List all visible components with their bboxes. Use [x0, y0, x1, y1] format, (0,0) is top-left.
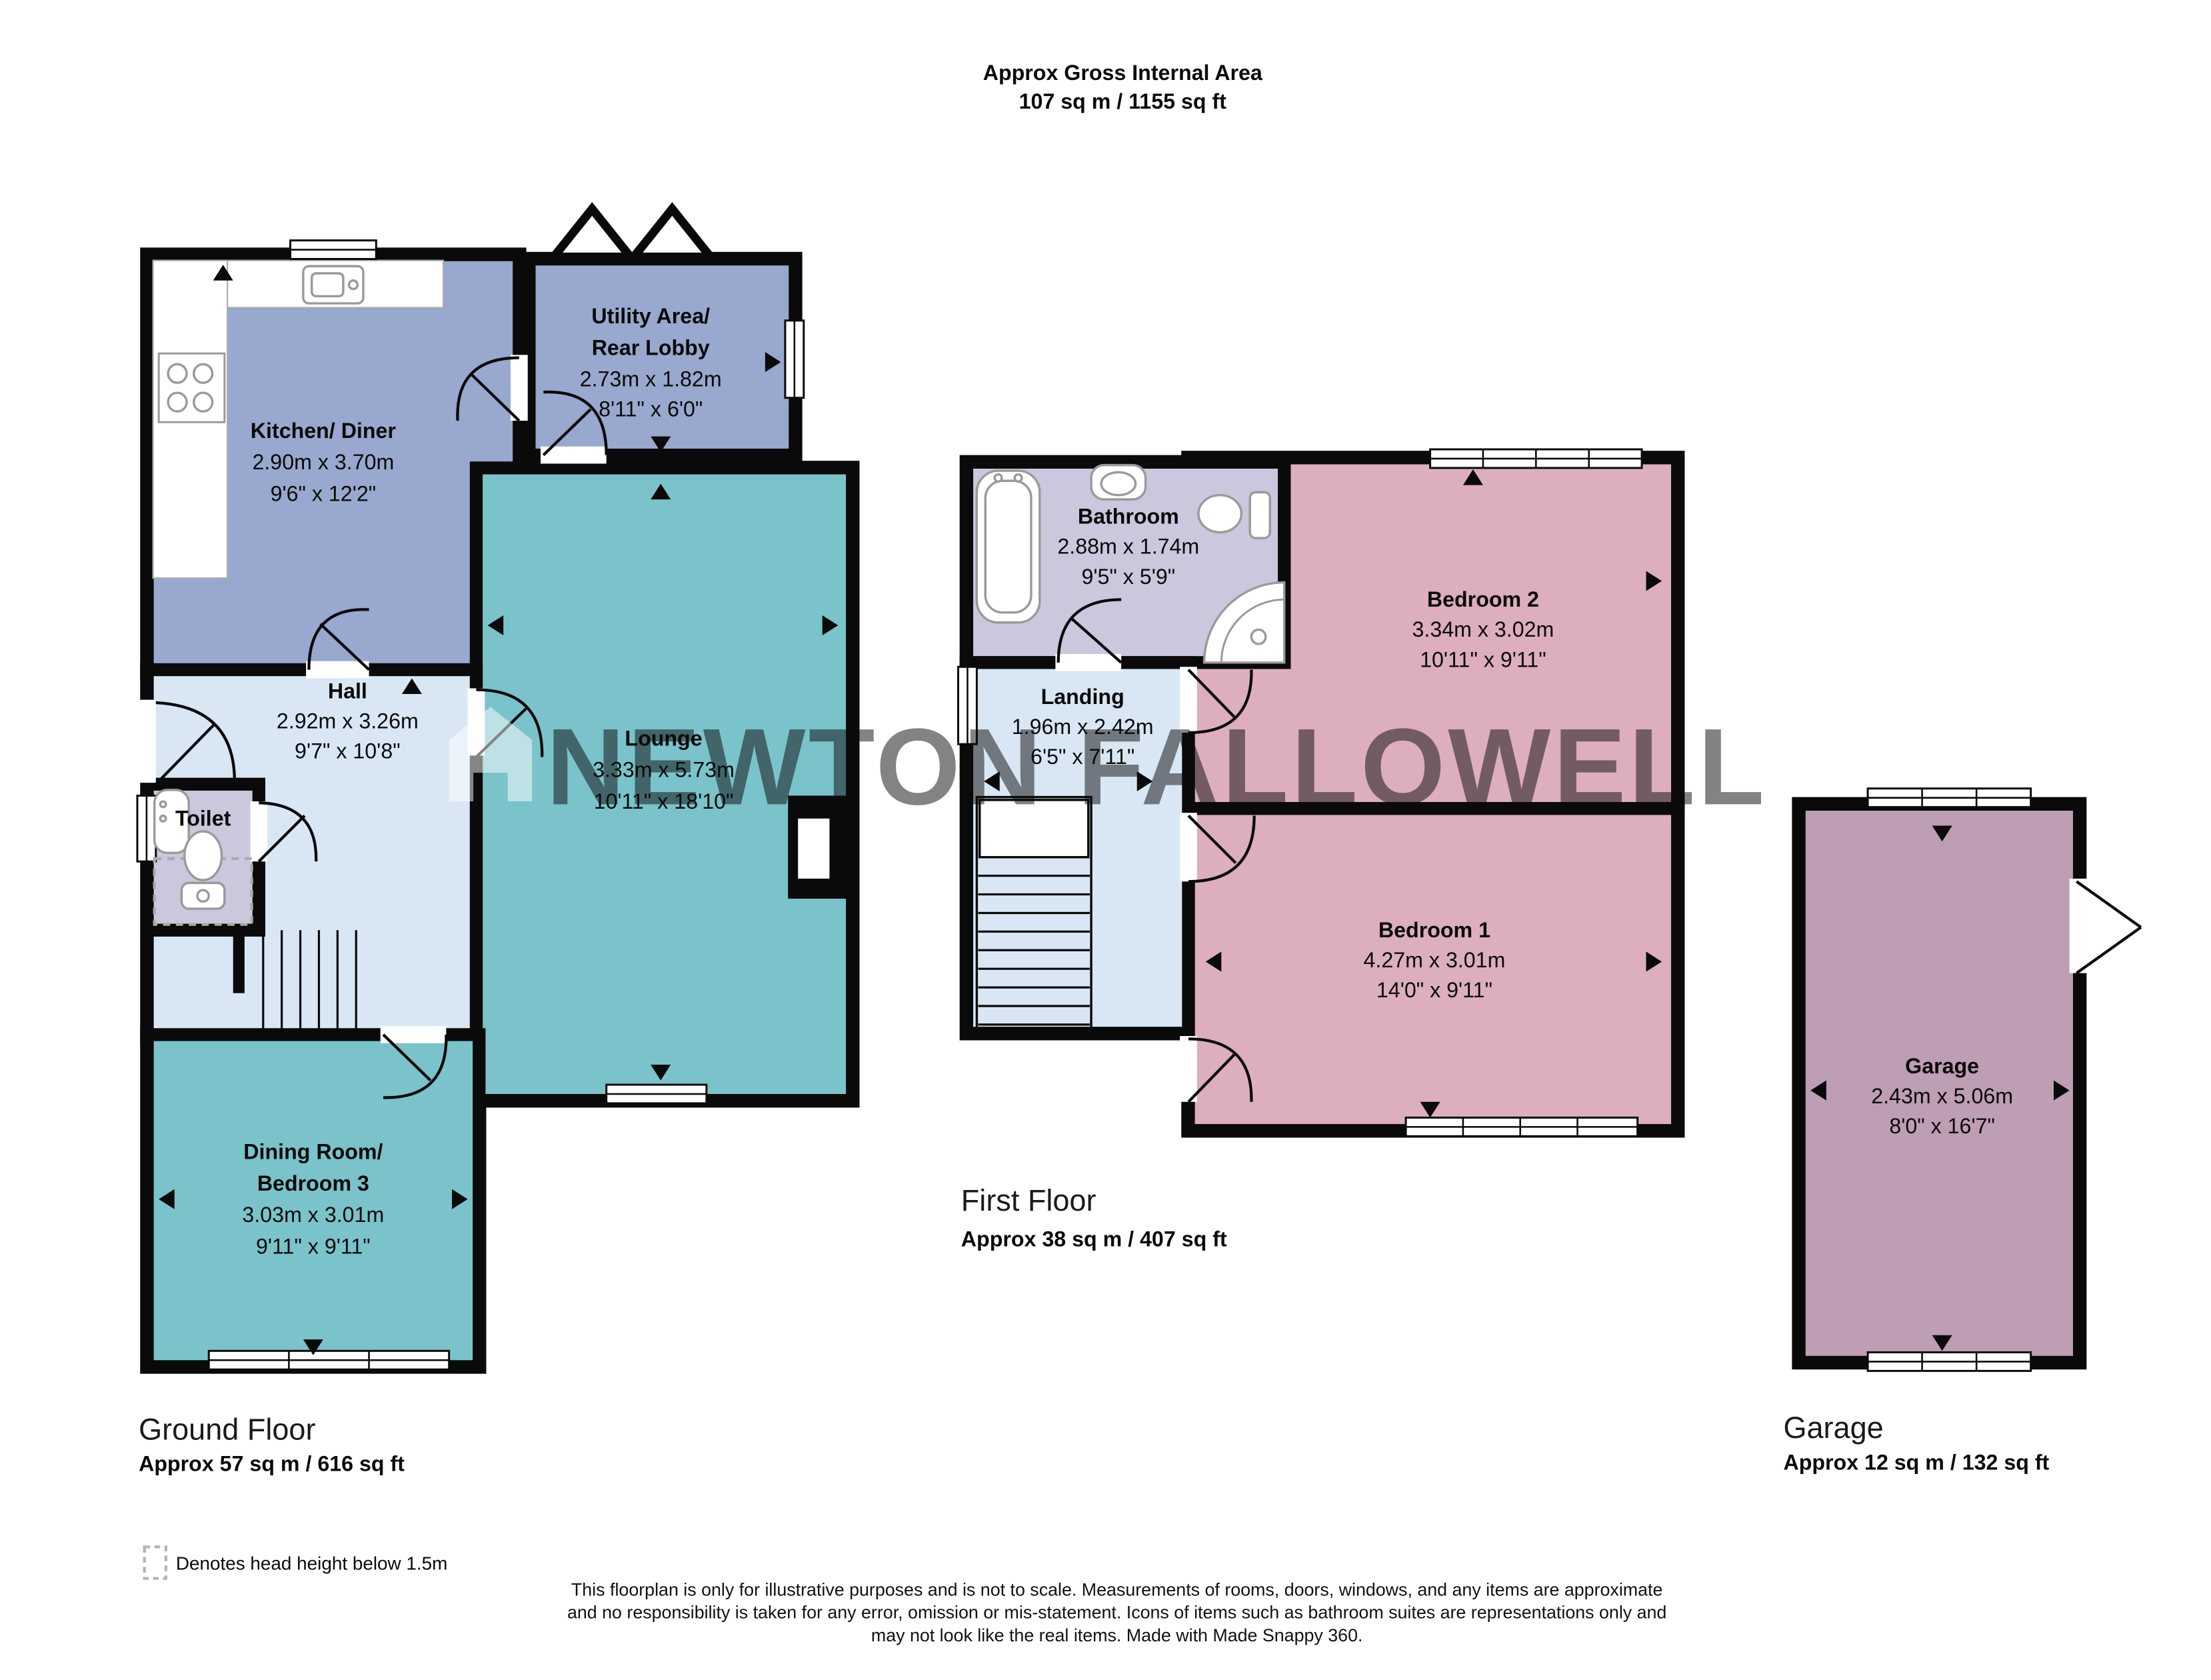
garage-label: Garage — [1783, 1411, 1883, 1445]
floorplan-svg: NEWTON FALLOWELL Approx Gross Internal A… — [0, 0, 2211, 1680]
window-utility — [785, 321, 804, 398]
svg-text:Hall: Hall — [328, 679, 367, 703]
svg-text:8'0" x 16'7": 8'0" x 16'7" — [1889, 1114, 1995, 1138]
svg-text:Landing: Landing — [1041, 685, 1124, 709]
disclaimer-line3: may not look like the real items. Made w… — [871, 1625, 1363, 1645]
label-bedroom2: Bedroom 2 3.34m x 3.02m 10'11" x 9'11" — [1412, 587, 1554, 671]
svg-text:2.73m x 1.82m: 2.73m x 1.82m — [580, 367, 722, 391]
label-toilet: Toilet — [175, 807, 231, 831]
label-bedroom1: Bedroom 1 4.27m x 3.01m 14'0" x 9'11" — [1364, 918, 1506, 1002]
svg-text:2.92m x 3.26m: 2.92m x 3.26m — [277, 709, 419, 733]
window-garage-top — [1868, 789, 2031, 807]
svg-text:Bedroom 3: Bedroom 3 — [257, 1171, 369, 1195]
svg-text:4.27m x 3.01m: 4.27m x 3.01m — [1364, 948, 1506, 972]
svg-text:3.33m x 5.73m: 3.33m x 5.73m — [593, 758, 735, 782]
svg-text:14'0" x 9'11": 14'0" x 9'11" — [1376, 978, 1492, 1002]
svg-text:2.43m x 5.06m: 2.43m x 5.06m — [1871, 1084, 2013, 1108]
garage-plan — [1792, 789, 2141, 1371]
svg-text:Bedroom 1: Bedroom 1 — [1378, 918, 1490, 942]
page-title-line2: 107 sq m / 1155 sq ft — [1019, 89, 1227, 113]
garage-side-door — [2070, 879, 2141, 973]
label-kitchen: Kitchen/ Diner 2.90m x 3.70m 9'6" x 12'2… — [251, 419, 397, 505]
legend: Denotes head height below 1.5m — [145, 1547, 448, 1578]
window-garage-bottom — [1868, 1352, 2031, 1371]
legend-text: Denotes head height below 1.5m — [176, 1553, 447, 1574]
svg-text:9'6" x 12'2": 9'6" x 12'2" — [271, 481, 377, 505]
disclaimer-line1: This floorplan is only for illustrative … — [571, 1579, 1662, 1599]
window-toilet — [137, 795, 156, 861]
first-floor-area: Approx 38 sq m / 407 sq ft — [961, 1227, 1227, 1251]
svg-text:10'11" x 9'11": 10'11" x 9'11" — [1420, 647, 1546, 671]
svg-text:9'5" x 5'9": 9'5" x 5'9" — [1081, 565, 1175, 589]
svg-text:1.96m x 2.42m: 1.96m x 2.42m — [1012, 715, 1154, 739]
sink-icon-first — [1091, 465, 1146, 500]
svg-text:Garage: Garage — [1905, 1054, 1979, 1078]
room-garage — [1799, 804, 2080, 1362]
svg-text:6'5" x 7'11": 6'5" x 7'11" — [1031, 745, 1134, 769]
svg-text:8'11" x 6'0": 8'11" x 6'0" — [599, 397, 703, 421]
window-lounge — [607, 1085, 707, 1103]
svg-text:Bathroom: Bathroom — [1078, 505, 1179, 529]
bath-icon — [977, 471, 1039, 623]
first-floor-label: First Floor — [961, 1183, 1097, 1217]
svg-text:2.90m x 3.70m: 2.90m x 3.70m — [252, 450, 394, 474]
svg-text:Rear Lobby: Rear Lobby — [592, 335, 710, 359]
svg-text:Lounge: Lounge — [625, 726, 702, 750]
ground-floor-label: Ground Floor — [139, 1412, 315, 1446]
svg-text:Utility Area/: Utility Area/ — [591, 304, 710, 328]
svg-text:Dining Room/: Dining Room/ — [243, 1140, 383, 1164]
disclaimer: This floorplan is only for illustrative … — [567, 1579, 1666, 1645]
ground-floor-area: Approx 57 sq m / 616 sq ft — [139, 1452, 405, 1476]
svg-text:Toilet: Toilet — [175, 807, 231, 831]
sink-icon — [303, 266, 363, 303]
svg-text:2.88m x 1.74m: 2.88m x 1.74m — [1057, 535, 1199, 559]
utility-bay-gables — [552, 209, 712, 259]
svg-text:Kitchen/ Diner: Kitchen/ Diner — [251, 419, 397, 443]
page-title-line1: Approx Gross Internal Area — [983, 61, 1263, 85]
floorplan-page: NEWTON FALLOWELL Approx Gross Internal A… — [0, 0, 2211, 1680]
legend-dashed-box — [145, 1547, 166, 1578]
window-bedroom1 — [1406, 1117, 1638, 1136]
disclaimer-line2: and no responsibility is taken for any e… — [567, 1603, 1666, 1623]
svg-text:Bedroom 2: Bedroom 2 — [1427, 587, 1539, 611]
window-kitchen — [291, 241, 377, 259]
svg-text:10'11" x 18'10": 10'11" x 18'10" — [594, 789, 734, 813]
toilet-icon — [181, 831, 224, 909]
svg-text:9'11" x 9'11": 9'11" x 9'11" — [256, 1234, 371, 1258]
window-bedroom2 — [1430, 449, 1642, 468]
window-dining — [209, 1351, 449, 1369]
header: Approx Gross Internal Area 107 sq m / 11… — [983, 61, 1263, 113]
svg-text:9'7" x 10'8": 9'7" x 10'8" — [295, 739, 401, 763]
svg-text:3.34m x 3.02m: 3.34m x 3.02m — [1412, 617, 1554, 641]
garage-area: Approx 12 sq m / 132 sq ft — [1783, 1450, 2049, 1474]
svg-text:3.03m x 3.01m: 3.03m x 3.01m — [242, 1203, 384, 1227]
